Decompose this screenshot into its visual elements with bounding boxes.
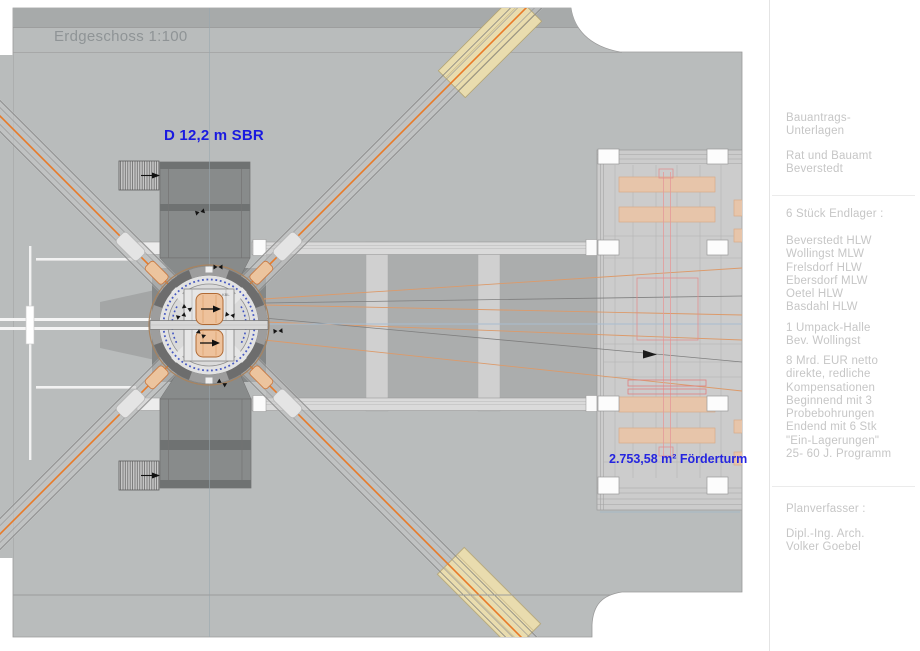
sidebar-compensation: 8 Mrd. EUR netto direkte, redliche Kompe… xyxy=(786,355,891,461)
stairs-north xyxy=(119,161,160,190)
shaft-diameter-label: D 12,2 m SBR xyxy=(164,127,264,144)
floor-title: Erdgeschoss 1:100 xyxy=(54,28,188,45)
sidebar-author-heading: Planverfasser : xyxy=(786,503,866,516)
sidebar-divider-1 xyxy=(772,195,915,196)
sidebar-author: Dipl.-Ing. Arch. Volker Goebel xyxy=(786,528,865,555)
plan-sheet-screenshot: KBL Erdgeschoss 1:100 D 12,2 m SBR 2.753… xyxy=(0,0,920,651)
kbl-label: KBL xyxy=(222,292,230,297)
sidebar-repositories-heading: 6 Stück Endlager : xyxy=(786,208,884,221)
cage-upper xyxy=(196,294,223,325)
sidebar: Bauantrags- Unterlagen Rat und Bauamt Be… xyxy=(769,0,920,651)
sidebar-authority: Rat und Bauamt Beverstedt xyxy=(786,150,872,177)
sidebar-repositories-list: Beverstedt HLW Wollingst MLW Frelsdorf H… xyxy=(786,235,872,315)
cage-lower xyxy=(196,330,223,357)
sidebar-umpack-halle: 1 Umpack-Halle Bev. Wollingst xyxy=(786,322,871,349)
stairs-south xyxy=(119,461,160,490)
foerderturm-area-label: 2.753,58 m² Förderturm xyxy=(609,452,747,466)
west-wedge xyxy=(100,290,155,360)
sidebar-divider-2 xyxy=(772,486,915,487)
sidebar-application: Bauantrags- Unterlagen xyxy=(786,112,851,139)
